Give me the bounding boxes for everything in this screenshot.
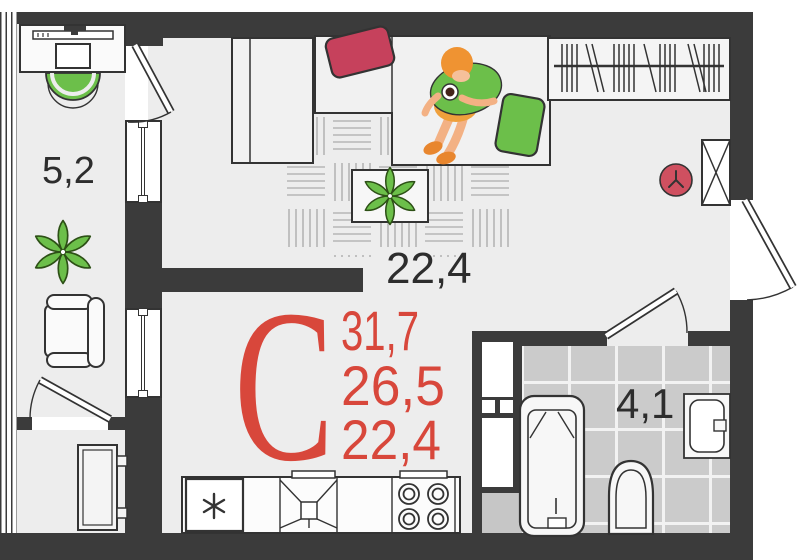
green-pillow <box>494 93 545 157</box>
bathroom-area-label: 4,1 <box>616 380 674 428</box>
bathtub <box>520 396 584 536</box>
wardrobe <box>232 38 313 163</box>
area-living: 22,4 <box>341 408 441 471</box>
area-total: 31,7 <box>341 299 419 362</box>
radiator <box>78 445 127 530</box>
bathroom-sink <box>684 394 730 458</box>
balcony-door-lower <box>30 380 110 419</box>
balcony-plant <box>33 221 92 284</box>
entry-door <box>745 200 793 300</box>
living-area-label: 22,4 <box>386 244 472 294</box>
hanger-closet <box>548 38 730 100</box>
red-stool <box>660 164 692 196</box>
plan-type-letter: С <box>234 266 334 507</box>
desk-chair <box>46 73 100 108</box>
balcony-door-upper <box>128 45 171 122</box>
monitor <box>56 44 90 68</box>
balcony-area-label: 5,2 <box>42 150 95 193</box>
bathroom-door <box>606 291 687 336</box>
armchair <box>45 295 104 367</box>
floor-plan: С 31,7 26,5 22,4 5,2 22,4 4,1 <box>0 0 804 560</box>
duct-shaft-x <box>702 140 730 205</box>
toilet <box>609 461 653 534</box>
